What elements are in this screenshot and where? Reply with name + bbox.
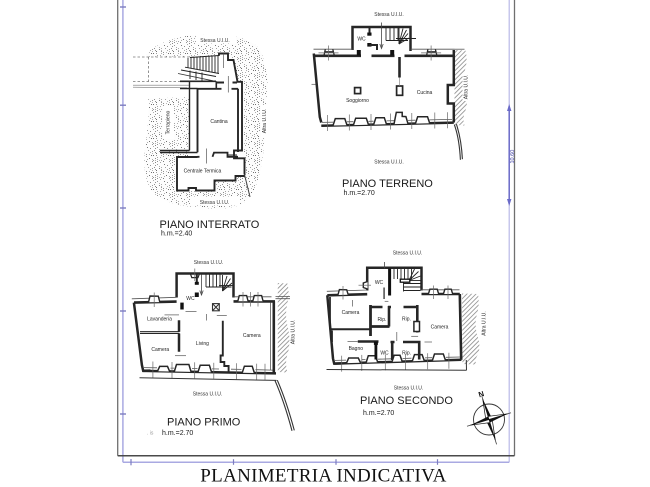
svg-text:Altra U.I.U.: Altra U.I.U. — [291, 320, 297, 344]
svg-text:Stessa U.I.U.: Stessa U.I.U. — [374, 12, 403, 18]
svg-text:Camera: Camera — [151, 347, 169, 353]
svg-text:Cucina: Cucina — [417, 90, 433, 96]
svg-text:h.m.=2.70: h.m.=2.70 — [344, 190, 375, 197]
svg-text:Stessa U.I.U.: Stessa U.I.U. — [200, 38, 229, 44]
svg-text:Stessa U.I.U.: Stessa U.I.U. — [393, 251, 422, 257]
svg-text:Stessa U.I.U.: Stessa U.I.U. — [200, 200, 229, 206]
svg-text:PIANO SECONDO: PIANO SECONDO — [360, 395, 453, 407]
svg-text:WC: WC — [380, 351, 389, 357]
svg-text:h.m.=2.40: h.m.=2.40 — [161, 231, 192, 238]
svg-text:Stessa U.I.U.: Stessa U.I.U. — [394, 386, 423, 392]
svg-text:Bagno: Bagno — [349, 346, 364, 352]
svg-text:Stessa U.I.U.: Stessa U.I.U. — [193, 392, 222, 398]
svg-text:Rip.: Rip. — [378, 317, 387, 323]
svg-text:Camera: Camera — [243, 333, 261, 339]
svg-text:Terrapieno: Terrapieno — [166, 110, 172, 134]
svg-text:Living: Living — [196, 341, 209, 347]
svg-text:Camera: Camera — [431, 324, 449, 330]
svg-text:WC: WC — [357, 37, 366, 43]
svg-text:Stessa U.I.U.: Stessa U.I.U. — [194, 260, 223, 266]
svg-text:Stessa U.I.U.: Stessa U.I.U. — [374, 160, 403, 166]
svg-text:Camera: Camera — [342, 310, 360, 316]
svg-text:Altra U.I.U.: Altra U.I.U. — [262, 109, 268, 133]
svg-text:h.m.=2.70: h.m.=2.70 — [162, 430, 193, 437]
svg-text:. is: . is — [147, 431, 154, 437]
svg-text:Soggiorno: Soggiorno — [346, 98, 369, 104]
svg-text:Cantina: Cantina — [210, 119, 227, 125]
svg-text:PIANO TERRENO: PIANO TERRENO — [342, 178, 433, 190]
svg-text:Rip.: Rip. — [402, 351, 411, 357]
svg-text:PIANO INTERRATO: PIANO INTERRATO — [160, 219, 260, 231]
svg-text:Centrale Termica: Centrale Termica — [184, 169, 222, 175]
svg-text:PIANO PRIMO: PIANO PRIMO — [167, 417, 241, 429]
svg-text:Altra U.I.U.: Altra U.I.U. — [482, 311, 488, 335]
svg-text:Lavanderia: Lavanderia — [147, 316, 172, 322]
svg-text:WC: WC — [186, 296, 195, 302]
svg-text:10.60: 10.60 — [510, 150, 516, 164]
svg-text:PLANIMETRIA INDICATIVA: PLANIMETRIA INDICATIVA — [200, 466, 446, 487]
svg-text:Altra U.I.U.: Altra U.I.U. — [464, 75, 470, 99]
svg-text:Rip.: Rip. — [402, 316, 411, 322]
svg-text:h.m.=2.70: h.m.=2.70 — [363, 410, 394, 417]
svg-text:WC: WC — [375, 280, 384, 286]
